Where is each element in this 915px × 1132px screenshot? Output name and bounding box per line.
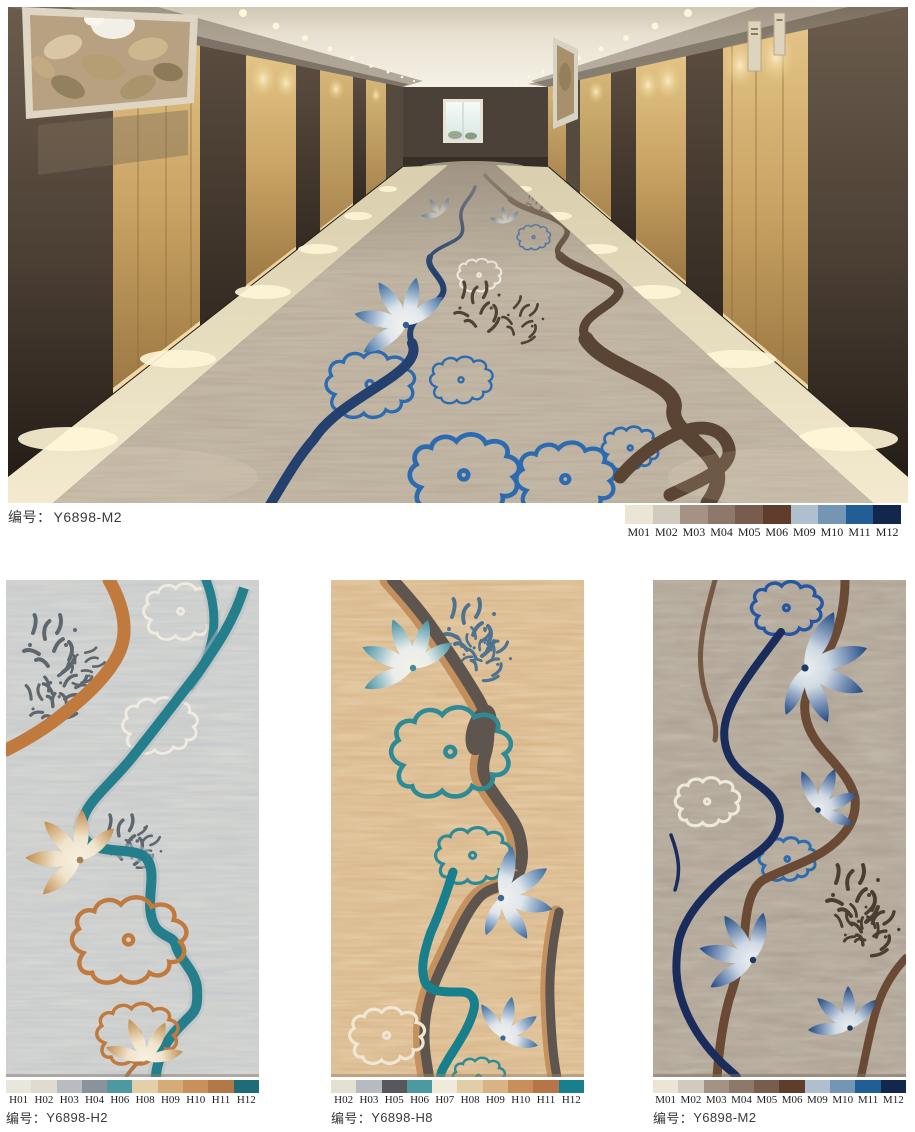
- color-chip-label: H02: [31, 1094, 56, 1106]
- product-card-h8: H02H03H05H06H07H08H09H10H11H12 编号： Y6898…: [331, 580, 584, 1127]
- end-wall: [403, 87, 548, 177]
- hero-color-palette: M01M02M03M04M05M06M09M10M11M12: [625, 505, 901, 540]
- color-chip: [763, 505, 791, 524]
- palette-swatch-M06: M06: [763, 505, 791, 540]
- color-chip: [407, 1080, 432, 1093]
- caption-label: 编号：: [331, 1108, 371, 1127]
- color-chip: [432, 1080, 457, 1093]
- hero-caption: 编号： Y6898-M2: [8, 507, 122, 527]
- palette-swatch-M04: M04: [708, 505, 736, 540]
- palette-swatch-M02: M02: [653, 505, 681, 540]
- color-chip: [791, 505, 819, 524]
- color-chip: [805, 1080, 830, 1093]
- palette-swatch-M11: M11: [846, 505, 874, 540]
- color-chip-label: M03: [680, 525, 708, 540]
- color-chip-label: H05: [382, 1094, 407, 1106]
- color-chip: [331, 1080, 356, 1093]
- product-caption-h8: 编号： Y6898-H8: [331, 1108, 584, 1127]
- palette-swatch-H09: H09: [483, 1080, 508, 1106]
- color-chip: [183, 1080, 208, 1093]
- color-chip-label: M05: [735, 525, 763, 540]
- palette-swatch-H08: H08: [457, 1080, 482, 1106]
- color-chip-label: M11: [855, 1094, 880, 1106]
- palette-swatch-M05: M05: [754, 1080, 779, 1106]
- color-chip-label: H12: [559, 1094, 584, 1106]
- color-chip-label: H06: [407, 1094, 432, 1106]
- palette-swatch-H04: H04: [82, 1080, 107, 1106]
- product-card-m2: M01M02M03M04M05M06M09M10M11M12 编号： Y6898…: [653, 580, 906, 1127]
- right-wall-picture: [553, 37, 578, 129]
- color-palette-h8: H02H03H05H06H07H08H09H10H11H12: [331, 1080, 584, 1106]
- color-chip-label: M12: [881, 1094, 906, 1106]
- product-card-h2: H01H02H03H04H06H08H09H10H11H12 编号： Y6898…: [6, 580, 259, 1127]
- color-chip-label: H10: [508, 1094, 533, 1106]
- color-chip-label: M05: [754, 1094, 779, 1106]
- color-chip: [158, 1080, 183, 1093]
- color-chip: [483, 1080, 508, 1093]
- color-chip-label: M04: [708, 525, 736, 540]
- color-chip: [735, 505, 763, 524]
- palette-swatch-M03: M03: [680, 505, 708, 540]
- color-chip-label: M12: [873, 525, 901, 540]
- palette-swatch-H12: H12: [234, 1080, 259, 1106]
- color-chip-label: H08: [132, 1094, 157, 1106]
- product-caption-h2: 编号： Y6898-H2: [6, 1108, 259, 1127]
- color-chip: [779, 1080, 804, 1093]
- color-chip-label: M10: [830, 1094, 855, 1106]
- color-chip: [6, 1080, 31, 1093]
- palette-swatch-H12: H12: [559, 1080, 584, 1106]
- color-chip-label: M01: [625, 525, 653, 540]
- palette-swatch-H05: H05: [382, 1080, 407, 1106]
- color-chip: [873, 505, 901, 524]
- color-chip-label: M01: [653, 1094, 678, 1106]
- product-code: Y6898-H8: [371, 1110, 433, 1125]
- palette-swatch-H03: H03: [57, 1080, 82, 1106]
- artwork-frame: [22, 7, 198, 175]
- palette-swatch-M12: M12: [881, 1080, 906, 1106]
- color-chip-label: M06: [763, 525, 791, 540]
- color-chip: [754, 1080, 779, 1093]
- caption-label: 编号：: [8, 507, 52, 527]
- caption-label: 编号：: [653, 1108, 693, 1127]
- palette-swatch-M11: M11: [855, 1080, 880, 1106]
- product-code: Y6898-M2: [693, 1110, 756, 1125]
- color-chip-label: M09: [805, 1094, 830, 1106]
- color-chip: [208, 1080, 233, 1093]
- product-caption-m2: 编号： Y6898-M2: [653, 1108, 906, 1127]
- color-chip-label: H10: [183, 1094, 208, 1106]
- color-chip-label: M06: [779, 1094, 804, 1106]
- palette-swatch-H11: H11: [533, 1080, 558, 1106]
- color-chip: [855, 1080, 880, 1093]
- carpet-swatch-art-h2: [6, 580, 259, 1077]
- palette-swatch-H10: H10: [183, 1080, 208, 1106]
- color-chip-label: M03: [704, 1094, 729, 1106]
- color-chip: [678, 1080, 703, 1093]
- palette-swatch-M12: M12: [873, 505, 901, 540]
- carpet-swatch-art-h8: [331, 580, 584, 1077]
- product-code: Y6898-H2: [46, 1110, 108, 1125]
- palette-swatch-M09: M09: [805, 1080, 830, 1106]
- palette-swatch-H08: H08: [132, 1080, 157, 1106]
- color-chip: [704, 1080, 729, 1093]
- color-chip: [107, 1080, 132, 1093]
- palette-swatch-M01: M01: [653, 1080, 678, 1106]
- palette-swatch-M09: M09: [791, 505, 819, 540]
- color-chip: [729, 1080, 754, 1093]
- color-chip: [508, 1080, 533, 1093]
- color-chip-label: M11: [846, 525, 874, 540]
- color-chip: [559, 1080, 584, 1093]
- color-chip: [830, 1080, 855, 1093]
- palette-swatch-M01: M01: [625, 505, 653, 540]
- color-chip: [680, 505, 708, 524]
- color-chip: [708, 505, 736, 524]
- palette-swatch-H11: H11: [208, 1080, 233, 1106]
- color-chip: [382, 1080, 407, 1093]
- palette-swatch-H02: H02: [31, 1080, 56, 1106]
- color-chip-label: M10: [818, 525, 846, 540]
- color-chip-label: H12: [234, 1094, 259, 1106]
- color-chip: [234, 1080, 259, 1093]
- color-chip-label: H02: [331, 1094, 356, 1106]
- color-chip-label: H08: [457, 1094, 482, 1106]
- color-chip-label: H07: [432, 1094, 457, 1106]
- color-chip: [57, 1080, 82, 1093]
- color-chip-label: H11: [208, 1094, 233, 1106]
- color-chip-label: M02: [653, 525, 681, 540]
- palette-swatch-H10: H10: [508, 1080, 533, 1106]
- palette-swatch-H03: H03: [356, 1080, 381, 1106]
- color-chip-label: H09: [483, 1094, 508, 1106]
- color-chip: [653, 505, 681, 524]
- color-chip: [881, 1080, 906, 1093]
- color-chip-label: H09: [158, 1094, 183, 1106]
- catalog-page: { "hero": { "caption_label": "编号：", "cod…: [0, 0, 915, 1132]
- color-chip: [818, 505, 846, 524]
- color-chip: [132, 1080, 157, 1093]
- palette-swatch-H02: H02: [331, 1080, 356, 1106]
- caption-label: 编号：: [6, 1108, 46, 1127]
- color-chip-label: H03: [57, 1094, 82, 1106]
- palette-swatch-H06: H06: [107, 1080, 132, 1106]
- corridor-photo: [8, 7, 908, 503]
- color-chip: [533, 1080, 558, 1093]
- color-chip-label: H11: [533, 1094, 558, 1106]
- color-chip-label: H01: [6, 1094, 31, 1106]
- color-chip-label: H06: [107, 1094, 132, 1106]
- color-chip-label: M09: [791, 525, 819, 540]
- carpet-swatch-art-m2: [653, 580, 906, 1077]
- palette-swatch-H09: H09: [158, 1080, 183, 1106]
- palette-swatch-M04: M04: [729, 1080, 754, 1106]
- color-chip: [625, 505, 653, 524]
- palette-swatch-M03: M03: [704, 1080, 729, 1106]
- color-chip-label: M02: [678, 1094, 703, 1106]
- color-palette-h2: H01H02H03H04H06H08H09H10H11H12: [6, 1080, 259, 1106]
- color-chip: [846, 505, 874, 524]
- color-chip: [31, 1080, 56, 1093]
- corridor-photo-illustration: [8, 7, 908, 503]
- product-code: Y6898-M2: [54, 509, 123, 525]
- palette-swatch-M02: M02: [678, 1080, 703, 1106]
- color-chip: [653, 1080, 678, 1093]
- palette-swatch-H01: H01: [6, 1080, 31, 1106]
- palette-swatch-M10: M10: [818, 505, 846, 540]
- color-palette-m2: M01M02M03M04M05M06M09M10M11M12: [653, 1080, 906, 1106]
- color-chip: [457, 1080, 482, 1093]
- color-chip-label: H04: [82, 1094, 107, 1106]
- color-chip-label: H03: [356, 1094, 381, 1106]
- palette-swatch-H06: H06: [407, 1080, 432, 1106]
- color-chip: [356, 1080, 381, 1093]
- palette-swatch-H07: H07: [432, 1080, 457, 1106]
- color-chip: [82, 1080, 107, 1093]
- color-chip-label: M04: [729, 1094, 754, 1106]
- palette-swatch-M10: M10: [830, 1080, 855, 1106]
- palette-swatch-M05: M05: [735, 505, 763, 540]
- palette-swatch-M06: M06: [779, 1080, 804, 1106]
